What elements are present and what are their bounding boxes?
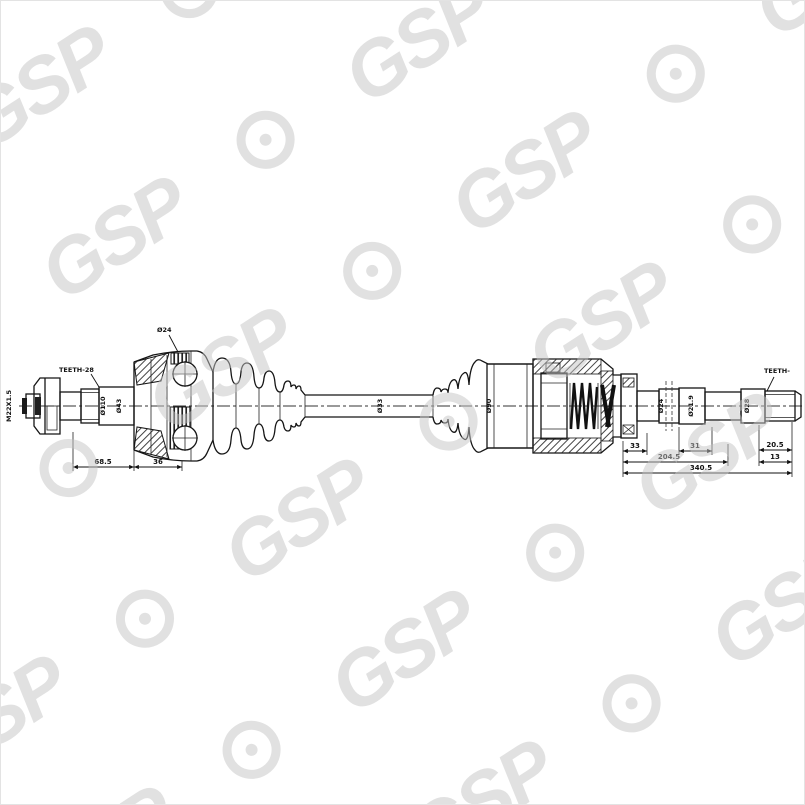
dia-shaft-label: Ø33 [376,399,384,414]
dim-36: 36 [153,458,163,466]
tripod-housing [533,359,621,453]
dim-20-5: 20.5 [766,441,783,449]
technical-drawing-canvas: M22X1.5 TEETH-28 Ø24 Ø110 Ø43 Ø33 Ø90 Ø2… [0,0,805,805]
dim-68-5: 68.5 [94,458,111,466]
dia-bearing-label: Ø21.9 [687,395,695,417]
dia-stub-label: Ø43 [115,399,123,414]
dia-end-label: Ø28 [743,398,751,413]
dia-seal-label: Ø24 [657,398,665,413]
dim-31: 31 [690,442,700,450]
dim-13: 13 [770,453,780,461]
driveshaft-diagram: M22X1.5 TEETH-28 Ø24 Ø110 Ø43 Ø33 Ø90 Ø2… [1,1,805,805]
teeth-right-label: TEETH- [764,367,790,375]
dia-joint-label: Ø90 [485,398,493,413]
teeth-left-label: TEETH-28 [59,366,94,374]
dim-33: 33 [630,442,640,450]
thread-label: M22X1.5 [5,390,13,423]
dia-hub-label: Ø110 [99,396,107,416]
dim-204-5: 204.5 [658,453,680,461]
dim-340-5: 340.5 [690,464,712,472]
snap-ring-label: Ø24 [157,326,172,334]
callout-labels: M22X1.5 TEETH-28 Ø24 Ø110 Ø43 Ø33 Ø90 Ø2… [5,326,790,422]
interconnecting-shaft [305,395,433,417]
